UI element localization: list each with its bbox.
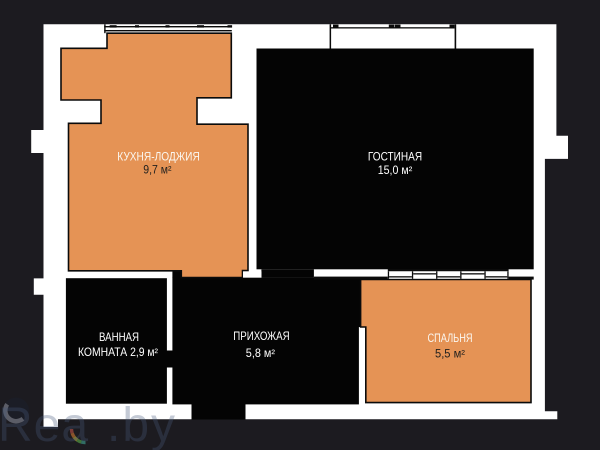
svg-text:ГОСТИНАЯ: ГОСТИНАЯ (368, 150, 422, 163)
svg-text:КУХНЯ-ЛОДЖИЯ: КУХНЯ-ЛОДЖИЯ (117, 150, 200, 163)
svg-text:5,8 м²: 5,8 м² (246, 347, 275, 360)
svg-text:ПРИХОЖАЯ: ПРИХОЖАЯ (233, 330, 289, 343)
svg-text:ВАННАЯ: ВАННАЯ (99, 331, 139, 344)
svg-text:5,5 м²: 5,5 м² (435, 348, 465, 361)
svg-text:.by: .by (107, 399, 177, 450)
svg-text:КОМНАТА 2,9 м²: КОМНАТА 2,9 м² (78, 346, 158, 359)
svg-text:Rea: Rea (0, 399, 89, 450)
svg-text:9,7 м²: 9,7 м² (143, 164, 171, 177)
svg-text:15,0 м²: 15,0 м² (378, 164, 413, 177)
svg-text:СПАЛЬНЯ: СПАЛЬНЯ (428, 332, 473, 345)
